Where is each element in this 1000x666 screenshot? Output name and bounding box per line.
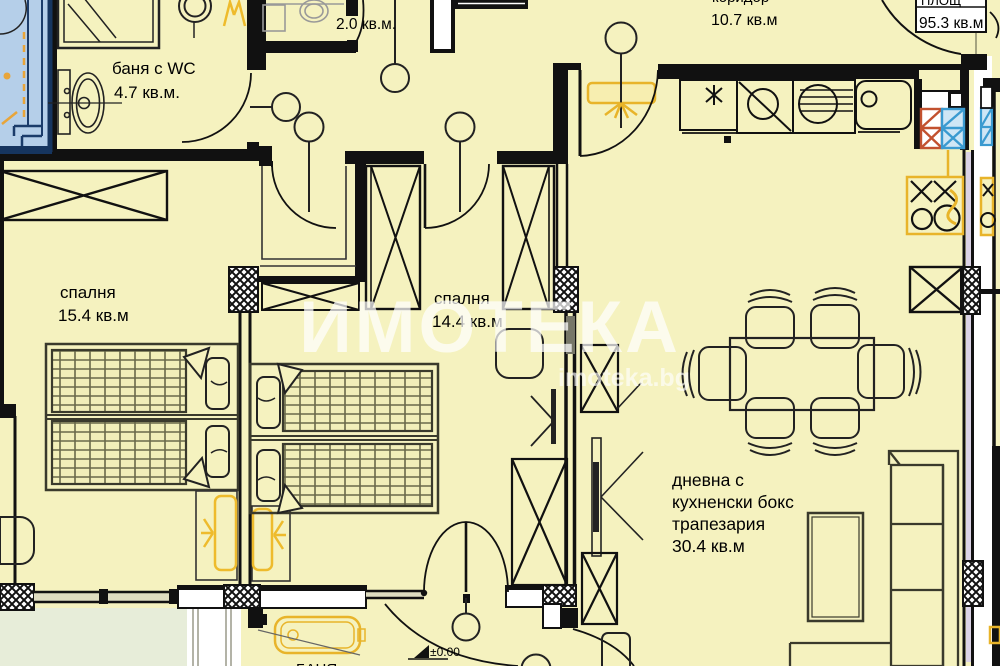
svg-text:10.7 кв.м: 10.7 кв.м	[711, 12, 778, 29]
svg-text:2.0 кв.м.: 2.0 кв.м.	[336, 16, 396, 33]
svg-text:спалня: спалня	[60, 283, 116, 302]
svg-text:БАНЯ: БАНЯ	[296, 661, 337, 666]
svg-text:imoteka.bg: imoteka.bg	[558, 364, 690, 392]
svg-text:ПЛОЩ: ПЛОЩ	[921, 0, 961, 8]
svg-text:дневна с: дневна с	[672, 470, 744, 490]
svg-text:баня с WC: баня с WC	[112, 59, 196, 78]
svg-text:ИМОТЕКА: ИМОТЕКА	[299, 287, 681, 368]
svg-text:95.3 кв.м: 95.3 кв.м	[919, 15, 983, 32]
svg-text:кухненски бокс: кухненски бокс	[672, 492, 794, 512]
svg-text:4.7 кв.м.: 4.7 кв.м.	[114, 83, 180, 102]
svg-text:коридор: коридор	[712, 0, 769, 6]
svg-text:±0.00: ±0.00	[430, 645, 460, 659]
svg-text:15.4 кв.м: 15.4 кв.м	[58, 306, 129, 325]
svg-text:30.4 кв.м: 30.4 кв.м	[672, 536, 745, 556]
svg-text:трапезария: трапезария	[672, 514, 765, 534]
